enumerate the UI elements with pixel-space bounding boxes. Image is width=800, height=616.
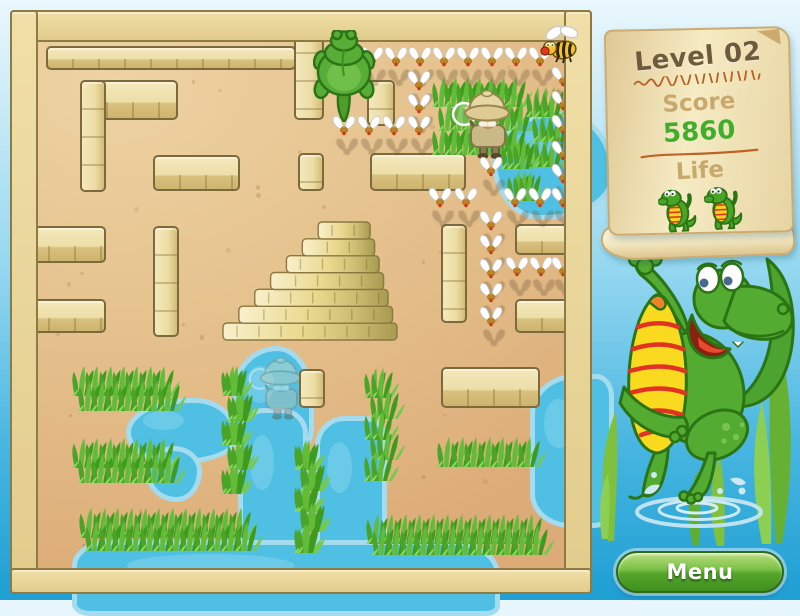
sand-speck [69,414,72,417]
wall-block [153,155,240,191]
grass-patch [295,437,324,554]
fly-icon [453,186,479,208]
fly-icon [431,45,457,67]
wall-block [153,226,179,337]
fly-icon [527,186,553,208]
fly-icon [381,114,407,136]
fly-icon [479,45,505,67]
fly-shadow [334,136,360,158]
sand-speck [421,475,426,480]
fly-icon [478,305,504,327]
board-frame-top [10,10,592,42]
grass-patch [73,435,179,484]
fly-icon [383,45,409,67]
score-label: Score [661,88,735,118]
fly-shadow [384,136,410,158]
score-value: 5860 [662,115,736,149]
lives-row [657,184,743,235]
sand-speck [67,282,72,287]
sand-speck [80,272,84,276]
wall-block [46,46,296,70]
fly-icon [406,92,432,114]
fly-icon [478,155,504,177]
grass-patch [73,363,179,412]
explorer-character [451,86,515,160]
fly-icon [504,255,530,277]
wall-block [298,153,324,191]
bee-icon [539,24,583,66]
fly-shadow [507,277,533,299]
fly-icon [427,186,453,208]
life-croc-icon [657,186,698,234]
pyramid [223,222,397,340]
fly-icon [407,45,433,67]
board-frame-bottom [10,568,592,594]
fly-icon [503,45,529,67]
grass-patch [365,365,398,482]
fly-icon [455,45,481,67]
mascot-crocodile [596,238,800,550]
hud-scroll-panel: Level 02 Score 5860 Life [604,26,794,236]
menu-button[interactable]: Menu [616,551,784,593]
sand-speck [256,193,261,198]
sand-speck [200,335,205,340]
game-board[interactable] [10,10,592,594]
life-croc-icon [703,184,744,232]
sand-speck [483,479,488,484]
fly-shadow [481,327,507,349]
fly-icon [406,69,432,91]
sand-speck [134,207,139,212]
wall-block [299,369,325,408]
grass-patch [222,363,252,495]
fly-shadow [430,208,456,230]
board-frame-left [10,10,38,594]
fly-shadow [505,208,531,230]
life-label: Life [675,157,725,186]
grass-patch [438,434,545,478]
grass-patch [80,505,256,552]
fly-icon [406,114,432,136]
fly-icon [478,209,504,231]
grass-patch [367,511,547,556]
fly-shadow [409,136,435,158]
scroll-corner-fold [757,29,781,47]
wall-block [441,367,540,408]
player-crocodile [313,30,375,122]
fly-icon [478,233,504,255]
sand-speck [218,89,221,92]
fly-shadow [359,136,385,158]
board-frame-right [564,10,592,594]
fly-icon [478,281,504,303]
wall-block [80,80,106,192]
fly-icon [502,186,528,208]
fly-shadow [530,208,556,230]
sand-speck [256,185,260,189]
fly-icon [478,257,504,279]
wall-block [441,224,467,323]
